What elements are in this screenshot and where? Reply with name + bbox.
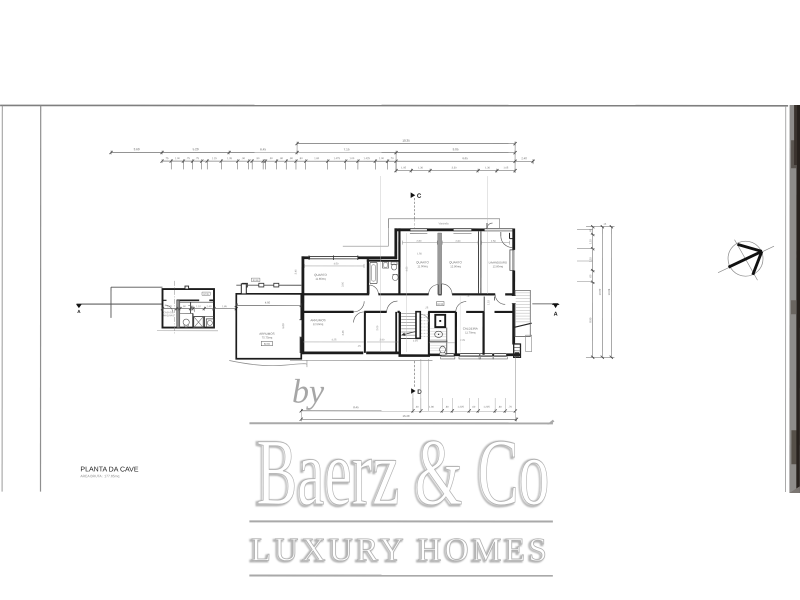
svg-text:3.90: 3.90 bbox=[380, 338, 385, 341]
svg-text:2.80: 2.80 bbox=[455, 240, 460, 243]
svg-text:Baerz & Co: Baerz & Co bbox=[256, 419, 549, 525]
svg-text:11.70mq: 11.70mq bbox=[465, 331, 476, 335]
svg-text:.15: .15 bbox=[357, 345, 361, 348]
svg-text:11.00mq: 11.00mq bbox=[417, 264, 428, 268]
svg-text:1.30: 1.30 bbox=[418, 167, 423, 170]
svg-text:7.15: 7.15 bbox=[344, 147, 350, 151]
svg-text:.60: .60 bbox=[589, 228, 592, 232]
svg-text:10.00: 10.00 bbox=[598, 288, 602, 295]
svg-text:1.00: 1.00 bbox=[379, 157, 384, 160]
svg-text:4.25: 4.25 bbox=[332, 338, 337, 341]
svg-text:1.15: 1.15 bbox=[589, 257, 592, 262]
svg-text:12.90mq: 12.90mq bbox=[450, 264, 461, 268]
svg-text:A: A bbox=[554, 312, 558, 318]
svg-text:3.60: 3.60 bbox=[134, 147, 140, 151]
svg-text:4.60: 4.60 bbox=[406, 266, 409, 271]
svg-text:1.05: 1.05 bbox=[503, 167, 508, 170]
svg-text:1.15: 1.15 bbox=[212, 157, 217, 160]
svg-text:2.05: 2.05 bbox=[376, 325, 379, 330]
svg-text:1.425: 1.425 bbox=[363, 157, 370, 160]
svg-text:.80: .80 bbox=[280, 157, 284, 160]
svg-text:1.35: 1.35 bbox=[227, 157, 232, 160]
svg-text:3.30: 3.30 bbox=[452, 167, 457, 170]
svg-text:3.00: 3.00 bbox=[342, 281, 345, 286]
svg-text:2.40: 2.40 bbox=[521, 156, 527, 160]
svg-text:5.00: 5.00 bbox=[281, 323, 285, 329]
svg-text:LAVANDOURO: LAVANDOURO bbox=[489, 260, 507, 264]
svg-text:.70: .70 bbox=[390, 157, 394, 160]
svg-text:1.00: 1.00 bbox=[349, 157, 354, 160]
svg-text:.90: .90 bbox=[242, 157, 246, 160]
svg-text:3.40: 3.40 bbox=[295, 269, 298, 274]
svg-text:ARRUMOS: ARRUMOS bbox=[310, 318, 325, 322]
svg-text:BC3B: BC3B bbox=[253, 280, 259, 282]
svg-text:9.05: 9.05 bbox=[453, 147, 459, 151]
svg-text:10.08: 10.08 bbox=[607, 288, 611, 295]
svg-text:D: D bbox=[417, 389, 422, 396]
svg-text:1.05: 1.05 bbox=[401, 167, 406, 170]
svg-text:1.80: 1.80 bbox=[429, 406, 434, 409]
svg-text:​.90: ​.90 bbox=[256, 157, 260, 160]
svg-text:1.225: 1.225 bbox=[458, 406, 465, 409]
svg-text:8.95: 8.95 bbox=[588, 317, 592, 323]
svg-text:1.15: 1.15 bbox=[589, 239, 592, 244]
svg-text:2.46: 2.46 bbox=[342, 330, 345, 335]
svg-text:QUARTO: QUARTO bbox=[416, 260, 429, 264]
svg-text:2.40: 2.40 bbox=[207, 305, 212, 308]
svg-text:1.50: 1.50 bbox=[417, 253, 422, 256]
svg-text:BC3B: BC3B bbox=[203, 294, 209, 296]
svg-text:.90: .90 bbox=[269, 157, 273, 160]
svg-text:1.10: 1.10 bbox=[196, 305, 201, 308]
svg-text:.75: .75 bbox=[466, 295, 470, 298]
svg-text:.80: .80 bbox=[299, 157, 303, 160]
svg-text:C: C bbox=[417, 193, 422, 200]
svg-text:.75: .75 bbox=[165, 157, 169, 160]
svg-text:12.50mq: 12.50mq bbox=[313, 322, 324, 326]
svg-text:.80: .80 bbox=[445, 406, 449, 409]
svg-text:.75: .75 bbox=[195, 157, 199, 160]
svg-text:11.85mq: 11.85mq bbox=[315, 277, 326, 281]
svg-text:AREA BRUTA : 177.85mq: AREA BRUTA : 177.85mq bbox=[80, 474, 119, 478]
svg-text:.25: .25 bbox=[425, 307, 429, 310]
svg-text:16.20: 16.20 bbox=[402, 414, 409, 418]
svg-text:.60: .60 bbox=[415, 406, 419, 409]
svg-text:CASA D.: CASA D. bbox=[163, 311, 172, 314]
svg-text:BC30: BC30 bbox=[437, 304, 443, 306]
svg-text:1.80: 1.80 bbox=[314, 157, 319, 160]
svg-text:1.30: 1.30 bbox=[485, 167, 490, 170]
svg-text:4.50: 4.50 bbox=[334, 263, 339, 266]
svg-text:6.65: 6.65 bbox=[462, 156, 468, 160]
svg-text:1.85: 1.85 bbox=[222, 305, 227, 308]
svg-text:BC3B: BC3B bbox=[264, 344, 270, 346]
svg-text:by: by bbox=[292, 373, 325, 410]
svg-text:2.25: 2.25 bbox=[460, 339, 465, 342]
svg-text:MAQ.NAS: MAQ.NAS bbox=[163, 314, 174, 317]
svg-text:1.15: 1.15 bbox=[487, 300, 490, 305]
svg-text:.70: .70 bbox=[508, 406, 512, 409]
svg-text:.60: .60 bbox=[472, 406, 476, 409]
svg-text:1.475: 1.475 bbox=[334, 157, 341, 160]
svg-text:1.00: 1.00 bbox=[175, 157, 180, 160]
svg-text:12.80mq: 12.80mq bbox=[493, 264, 504, 268]
svg-text:4.95: 4.95 bbox=[265, 301, 271, 305]
svg-text:1.70: 1.70 bbox=[167, 305, 172, 308]
svg-text:5.20: 5.20 bbox=[193, 147, 199, 151]
svg-text:LUXURY HOMES: LUXURY HOMES bbox=[251, 532, 554, 568]
svg-text:QUARTO: QUARTO bbox=[449, 260, 462, 264]
svg-text:10.35: 10.35 bbox=[402, 139, 410, 143]
svg-text:.80: .80 bbox=[498, 406, 502, 409]
svg-text:ARRUMOS: ARRUMOS bbox=[259, 332, 274, 336]
svg-text:1.225: 1.225 bbox=[483, 406, 490, 409]
svg-text:CALDEIRA: CALDEIRA bbox=[463, 327, 478, 331]
svg-text:QUARTO: QUARTO bbox=[314, 273, 327, 277]
svg-text:75.75mq: 75.75mq bbox=[262, 336, 273, 340]
svg-text:.80: .80 bbox=[289, 157, 293, 160]
svg-text:2.50: 2.50 bbox=[491, 240, 496, 243]
svg-text:PLANTA DA CAVE: PLANTA DA CAVE bbox=[80, 466, 138, 473]
svg-text:6.45: 6.45 bbox=[260, 147, 266, 151]
svg-text:.60: .60 bbox=[589, 274, 592, 278]
svg-text:.75: .75 bbox=[186, 157, 190, 160]
svg-text:2.25: 2.25 bbox=[413, 340, 418, 343]
svg-text:2.80: 2.80 bbox=[416, 240, 421, 243]
svg-text:Varanda: Varanda bbox=[439, 221, 449, 225]
svg-text:8.45: 8.45 bbox=[353, 405, 359, 409]
